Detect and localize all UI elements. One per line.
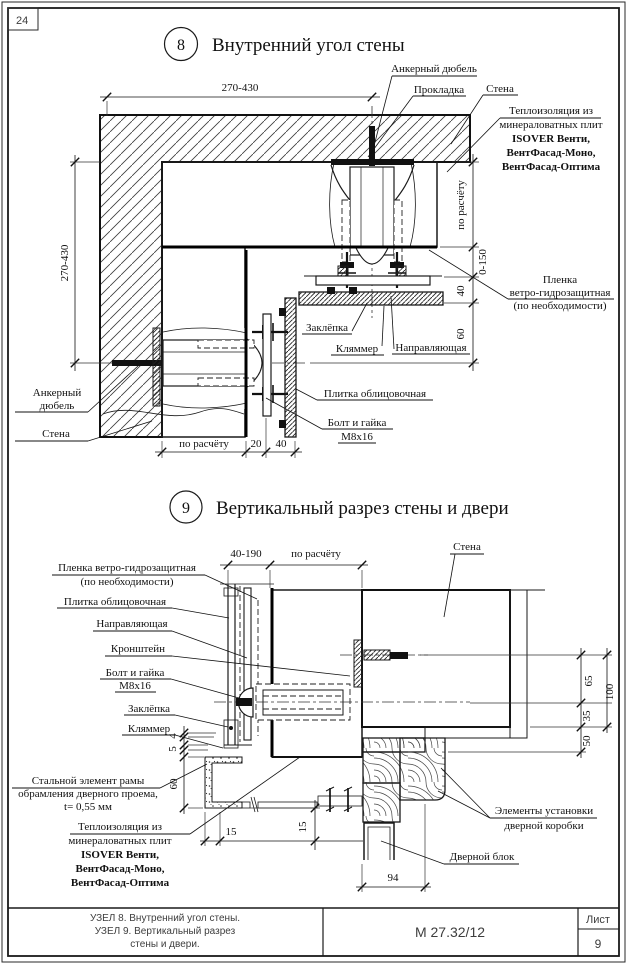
label-bolt-8: М8х16 <box>341 431 373 443</box>
clamp-d <box>279 420 286 428</box>
rail-vertical <box>263 314 271 416</box>
label-door-frame-elements-leader <box>438 791 490 818</box>
drawing-sheet: 24 <box>0 0 627 964</box>
label-anchor-dowel-left: Анкерный <box>33 387 82 399</box>
label-tile-9-leader <box>172 608 229 618</box>
rail-horizontal <box>316 276 430 285</box>
label-tile-9: Плитка облицовочная <box>64 596 166 608</box>
dim-po-raschetu-bottom: по расчёту <box>179 438 229 450</box>
extension-lines-9 <box>188 570 612 892</box>
label-bracket-9-leader <box>172 656 350 676</box>
dim-40-right: 40 <box>455 285 467 297</box>
label-insulation-9: минераловатных плит <box>68 835 171 847</box>
dim-15-h: 15 <box>226 826 238 838</box>
label-wall-9: Стена <box>453 541 481 553</box>
door-frame-blocks <box>363 738 445 822</box>
label-door-frame-elements: дверной коробки <box>504 820 583 832</box>
label-insulation-8: ВентФасад-Моно, <box>507 147 596 159</box>
tile-horizontal <box>299 292 443 305</box>
dim-20-bottom: 20 <box>251 438 263 450</box>
label-membrane-8: ветро-гидрозащитная <box>510 287 611 299</box>
label-insulation-8: ISOVER Венти, <box>512 133 590 145</box>
dim-60-right: 60 <box>455 328 467 340</box>
label-insulation-9: Теплоизоляция из <box>78 821 162 833</box>
title-block: УЗЕЛ 8. Внутренний угол стены. УЗЕЛ 9. В… <box>8 908 619 956</box>
drawing-canvas: 24 <box>0 0 627 964</box>
dim-40-190: 40-190 <box>230 548 262 560</box>
dim-270-430-left: 270-430 <box>59 244 71 281</box>
label-clamp-9: Кляммер <box>128 723 171 735</box>
insulation-section-9 <box>272 590 362 757</box>
clamp-b <box>349 287 357 294</box>
label-bracket-9: Кронштейн <box>111 643 165 655</box>
clamp-a <box>327 287 335 294</box>
label-steel-frame: Стальной элемент рамы <box>32 775 145 787</box>
doc-number: М 27.32/12 <box>415 924 485 940</box>
label-rail-8: Направляющая <box>395 342 466 354</box>
label-anchor-dowel-left: дюбель <box>40 400 75 412</box>
label-rivet-8: Заклёпка <box>306 322 348 334</box>
label-insulation-9: ВентФасад-Оптима <box>71 877 170 889</box>
label-rail-9-leader <box>172 631 247 658</box>
detail9-number: 9 <box>182 500 190 517</box>
title-block-desc-line2: УЗЕЛ 9. Вертикальный разрез <box>95 926 236 937</box>
detail9-title: Вертикальный разрез стены и двери <box>216 498 509 519</box>
dim-po-raschetu-right: по расчёту <box>455 180 467 230</box>
dim-po-raschetu-9: по расчёту <box>291 548 341 560</box>
dim-40-bottom: 40 <box>276 438 288 450</box>
clamp-c <box>279 308 286 316</box>
title-block-desc-line3: стены и двери. <box>130 939 199 950</box>
label-steel-frame: обрамления дверного проема, <box>18 788 158 800</box>
dim-5: 5 <box>167 746 179 752</box>
label-rivet-9-leader <box>175 715 228 727</box>
label-insulation-8: Теплоизоляция из <box>509 105 593 117</box>
plaster-bottom <box>425 727 510 738</box>
label-membrane-8: (по необходимости) <box>514 300 607 312</box>
corner-number: 24 <box>16 15 28 27</box>
sheet-label: Лист <box>586 914 610 926</box>
door-block <box>364 823 394 860</box>
label-membrane-9-leader <box>205 575 257 599</box>
label-insulation-9: ВентФасад-Моно, <box>76 863 165 875</box>
label-membrane-9: (по необходимости) <box>81 576 174 588</box>
dim-65: 65 <box>583 675 595 687</box>
label-door-block: Дверной блок <box>450 851 515 863</box>
dim-60-9: 60 <box>168 778 180 790</box>
label-rail-9: Направляющая <box>96 618 167 630</box>
label-steel-frame: t= 0,55 мм <box>64 801 112 813</box>
label-door-block-leader <box>381 841 444 864</box>
title-block-desc-line1: УЗЕЛ 8. Внутренний угол стены. <box>90 913 240 924</box>
label-door-frame-elements: Элементы установки <box>495 805 593 817</box>
dim-100: 100 <box>604 683 616 700</box>
dim-0-150: 0-150 <box>477 249 489 275</box>
sheet-number: 9 <box>595 937 602 951</box>
detail8-title: Внутренний угол стены <box>212 35 405 56</box>
rail-stub-a <box>338 266 348 276</box>
clamp-bottom-9 <box>224 720 238 748</box>
dim-270-430-top: 270-430 <box>222 82 259 94</box>
label-wall-9-leader <box>444 554 455 617</box>
label-anchor-dowel-top: Анкерный дюбель <box>391 63 477 75</box>
label-tile-8: Плитка облицовочная <box>324 388 426 400</box>
label-rivet-8-leader <box>352 303 367 331</box>
dim-15-v: 15 <box>297 821 309 833</box>
label-bolt-8: Болт и гайка <box>328 417 387 429</box>
dim-35: 35 <box>581 710 593 722</box>
label-bolt-9: Болт и гайка <box>106 667 165 679</box>
label-insulation-8: минераловатных плит <box>499 119 602 131</box>
label-wall-top: Стена <box>486 83 514 95</box>
label-wall-left: Стена <box>42 428 70 440</box>
label-insulation-8: ВентФасад-Оптима <box>502 161 601 173</box>
dim-4: 4 <box>167 733 179 739</box>
detail8-number: 8 <box>177 37 185 54</box>
label-insulation-9: ISOVER Венти, <box>81 849 159 861</box>
label-bolt-9: М8х16 <box>119 680 151 692</box>
label-door-frame-elements-leader <box>441 768 490 818</box>
dim-50: 50 <box>581 735 593 747</box>
tile-vertical <box>285 298 296 437</box>
label-membrane-9: Пленка ветро-гидрозащитная <box>58 562 196 574</box>
plaster-right <box>510 590 527 738</box>
label-gasket: Прокладка <box>414 84 464 96</box>
label-membrane-8: Пленка <box>543 274 577 286</box>
label-clamp-8-leader <box>382 306 384 346</box>
rail-stub-b <box>396 266 406 276</box>
label-tile-8-leader <box>296 389 317 400</box>
bracket-assembly-9 <box>214 640 470 720</box>
label-clamp-8: Кляммер <box>336 343 379 355</box>
steel-frame-element <box>205 757 362 812</box>
label-rivet-9: Заклёпка <box>128 703 170 715</box>
dim-94: 94 <box>388 872 400 884</box>
